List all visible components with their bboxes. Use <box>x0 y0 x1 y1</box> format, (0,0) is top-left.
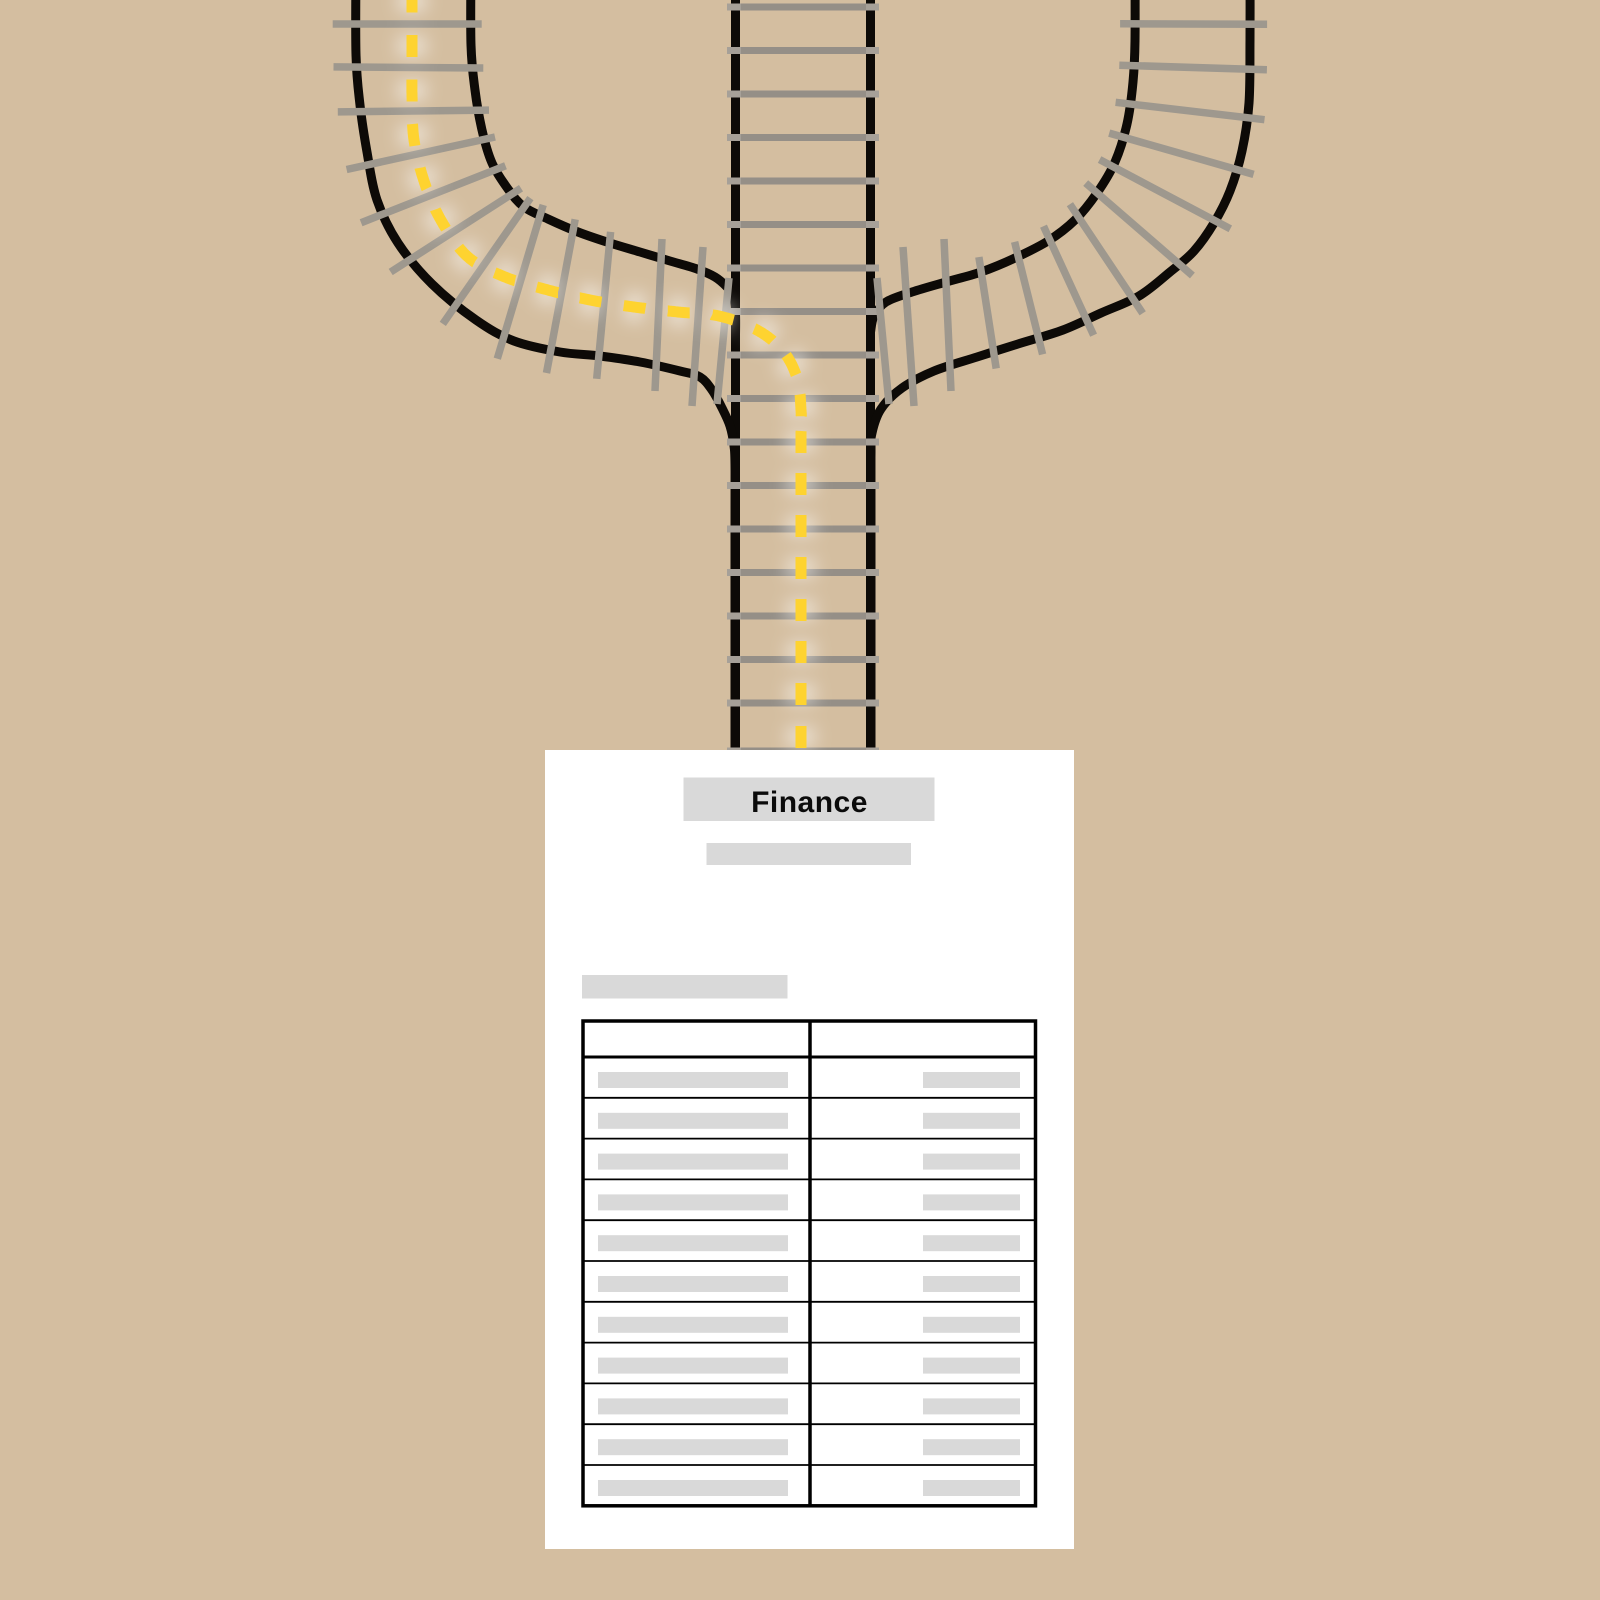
svg-text:Finance: Finance <box>751 786 868 819</box>
